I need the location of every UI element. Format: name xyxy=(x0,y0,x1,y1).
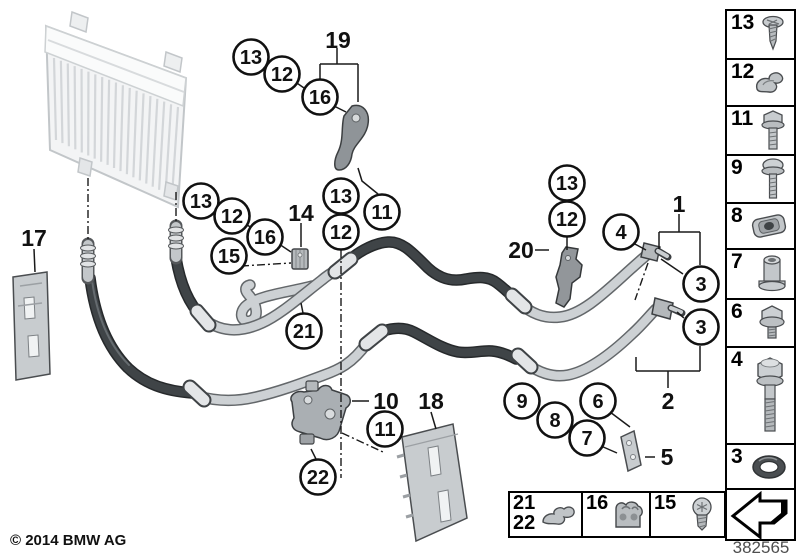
cooler-mount-tab xyxy=(164,52,182,72)
diagram-number: 382565 xyxy=(726,538,796,558)
legend-label: 15 xyxy=(654,492,676,515)
legend-label: 16 xyxy=(586,492,608,515)
collar-screw-icon xyxy=(755,157,791,201)
callout-12: 12 xyxy=(324,215,359,250)
cooler-fitting-right xyxy=(169,226,184,258)
legend-label: 13 xyxy=(731,11,754,35)
cage-nut-icon xyxy=(747,210,791,242)
svg-text:22: 22 xyxy=(307,467,329,489)
legend-cell-3: 3 xyxy=(727,445,794,490)
label-18: 18 xyxy=(418,388,444,414)
svg-text:12: 12 xyxy=(556,209,578,231)
cooler-port xyxy=(78,158,92,176)
callout-21: 21 xyxy=(287,314,322,349)
legend-label: 12 xyxy=(731,60,754,84)
label-2: 2 xyxy=(662,388,675,414)
svg-text:12: 12 xyxy=(271,64,293,86)
callout-13: 13 xyxy=(550,166,585,201)
legend-row: 21 22 16 15 xyxy=(508,491,726,538)
heat-shield-17 xyxy=(13,272,50,380)
svg-text:12: 12 xyxy=(221,206,243,228)
legend-label: 6 xyxy=(731,300,743,324)
callout-3: 3 xyxy=(684,310,719,345)
callout-13: 13 xyxy=(324,179,359,214)
engine-fitting-lower xyxy=(652,298,682,319)
label-5: 5 xyxy=(661,444,674,470)
callout-16: 16 xyxy=(303,80,338,115)
line-clip-icon xyxy=(540,500,580,530)
callout-12: 12 xyxy=(215,199,250,234)
hex-bolt-icon xyxy=(749,354,791,438)
parts-diagram-page: 1312161312161513121121131243398671122 19… xyxy=(0,0,800,560)
svg-text:3: 3 xyxy=(695,317,706,339)
svg-text:13: 13 xyxy=(190,191,212,213)
svg-text:12: 12 xyxy=(330,222,352,244)
pipe-clip-icon xyxy=(753,67,791,99)
svg-text:13: 13 xyxy=(330,186,352,208)
legend-cell-21-22: 21 22 xyxy=(510,493,583,536)
label-10: 10 xyxy=(373,388,399,414)
svg-text:16: 16 xyxy=(309,87,331,109)
clip-14 xyxy=(292,249,308,269)
label-19: 19 xyxy=(325,27,351,53)
legend-cell-arrow xyxy=(727,490,794,539)
cooler-mount-tab xyxy=(70,12,88,32)
svg-text:11: 11 xyxy=(371,202,392,224)
engine-fitting-upper xyxy=(641,243,668,261)
svg-text:6: 6 xyxy=(592,391,603,413)
label-17: 17 xyxy=(21,225,47,251)
legend-cell-6: 6 xyxy=(727,300,794,348)
callout-13: 13 xyxy=(234,40,269,75)
callout-11: 11 xyxy=(368,412,403,447)
legend-cell-7: 7 xyxy=(727,250,794,300)
svg-text:7: 7 xyxy=(581,428,592,450)
oil-cooler-lines-diagram: 1312161312161513121121131243398671122 19… xyxy=(0,0,800,560)
label-14: 14 xyxy=(288,200,314,226)
legend-cell-9: 9 xyxy=(727,156,794,204)
copyright-text: © 2014 BMW AG xyxy=(10,532,126,549)
legend-cell-8: 8 xyxy=(727,204,794,250)
holder-bracket-20 xyxy=(556,247,582,307)
svg-text:3: 3 xyxy=(695,274,706,296)
callout-13: 13 xyxy=(184,184,219,219)
callout-15: 15 xyxy=(212,239,247,274)
legend-label: 22 xyxy=(513,512,535,535)
svg-text:16: 16 xyxy=(254,227,276,249)
callout-7: 7 xyxy=(570,421,605,456)
cooler-fitting-left xyxy=(81,244,96,278)
svg-text:9: 9 xyxy=(516,391,527,413)
svg-text:13: 13 xyxy=(240,47,262,69)
callout-12: 12 xyxy=(265,57,300,92)
direction-arrow-icon xyxy=(728,491,792,539)
legend-cell-13: 13 xyxy=(727,11,794,60)
legend-label: 3 xyxy=(731,445,743,469)
legend-cell-12: 12 xyxy=(727,60,794,107)
legend-label: 8 xyxy=(731,204,743,228)
callout-12: 12 xyxy=(550,202,585,237)
oil-cooler-line-pipes xyxy=(81,226,683,400)
callout-6: 6 xyxy=(581,384,616,419)
callout-11: 11 xyxy=(365,195,400,230)
holder-bracket-19 xyxy=(335,105,369,170)
callout-8: 8 xyxy=(538,403,573,438)
legend-cell-11: 11 xyxy=(727,107,794,156)
flange-bolt-icon xyxy=(755,109,791,153)
svg-text:15: 15 xyxy=(218,246,240,268)
legend-cell-4: 4 xyxy=(727,348,794,445)
oil-cooler xyxy=(45,12,186,207)
svg-text:4: 4 xyxy=(615,222,627,244)
legend-label: 7 xyxy=(731,250,743,274)
svg-text:8: 8 xyxy=(549,410,560,432)
legend-cell-16: 16 xyxy=(583,493,651,536)
label-1: 1 xyxy=(673,191,686,217)
legend-label: 9 xyxy=(731,156,743,180)
spacer-sleeve-icon xyxy=(753,254,791,294)
tapping-screw-icon xyxy=(755,15,791,55)
legend-label: 11 xyxy=(731,107,753,131)
o-ring-icon xyxy=(747,450,791,484)
bracket-plate-18 xyxy=(397,424,467,541)
svg-text:21: 21 xyxy=(293,321,315,343)
legend-cell-15: 15 xyxy=(651,493,722,536)
legend-label: 4 xyxy=(731,348,743,372)
callout-3: 3 xyxy=(684,267,719,302)
svg-text:11: 11 xyxy=(374,419,395,441)
callout-16: 16 xyxy=(248,220,283,255)
label-20: 20 xyxy=(508,237,534,263)
callout-22: 22 xyxy=(301,460,336,495)
callout-9: 9 xyxy=(505,384,540,419)
legend-column: 13 12 11 9 8 xyxy=(725,9,796,541)
flange-screw-icon xyxy=(753,304,791,342)
pan-head-screw-icon xyxy=(683,496,721,534)
callout-4: 4 xyxy=(604,215,639,250)
svg-text:13: 13 xyxy=(556,173,578,195)
holder-clamp-icon xyxy=(608,497,648,533)
bracket-5 xyxy=(621,431,641,471)
